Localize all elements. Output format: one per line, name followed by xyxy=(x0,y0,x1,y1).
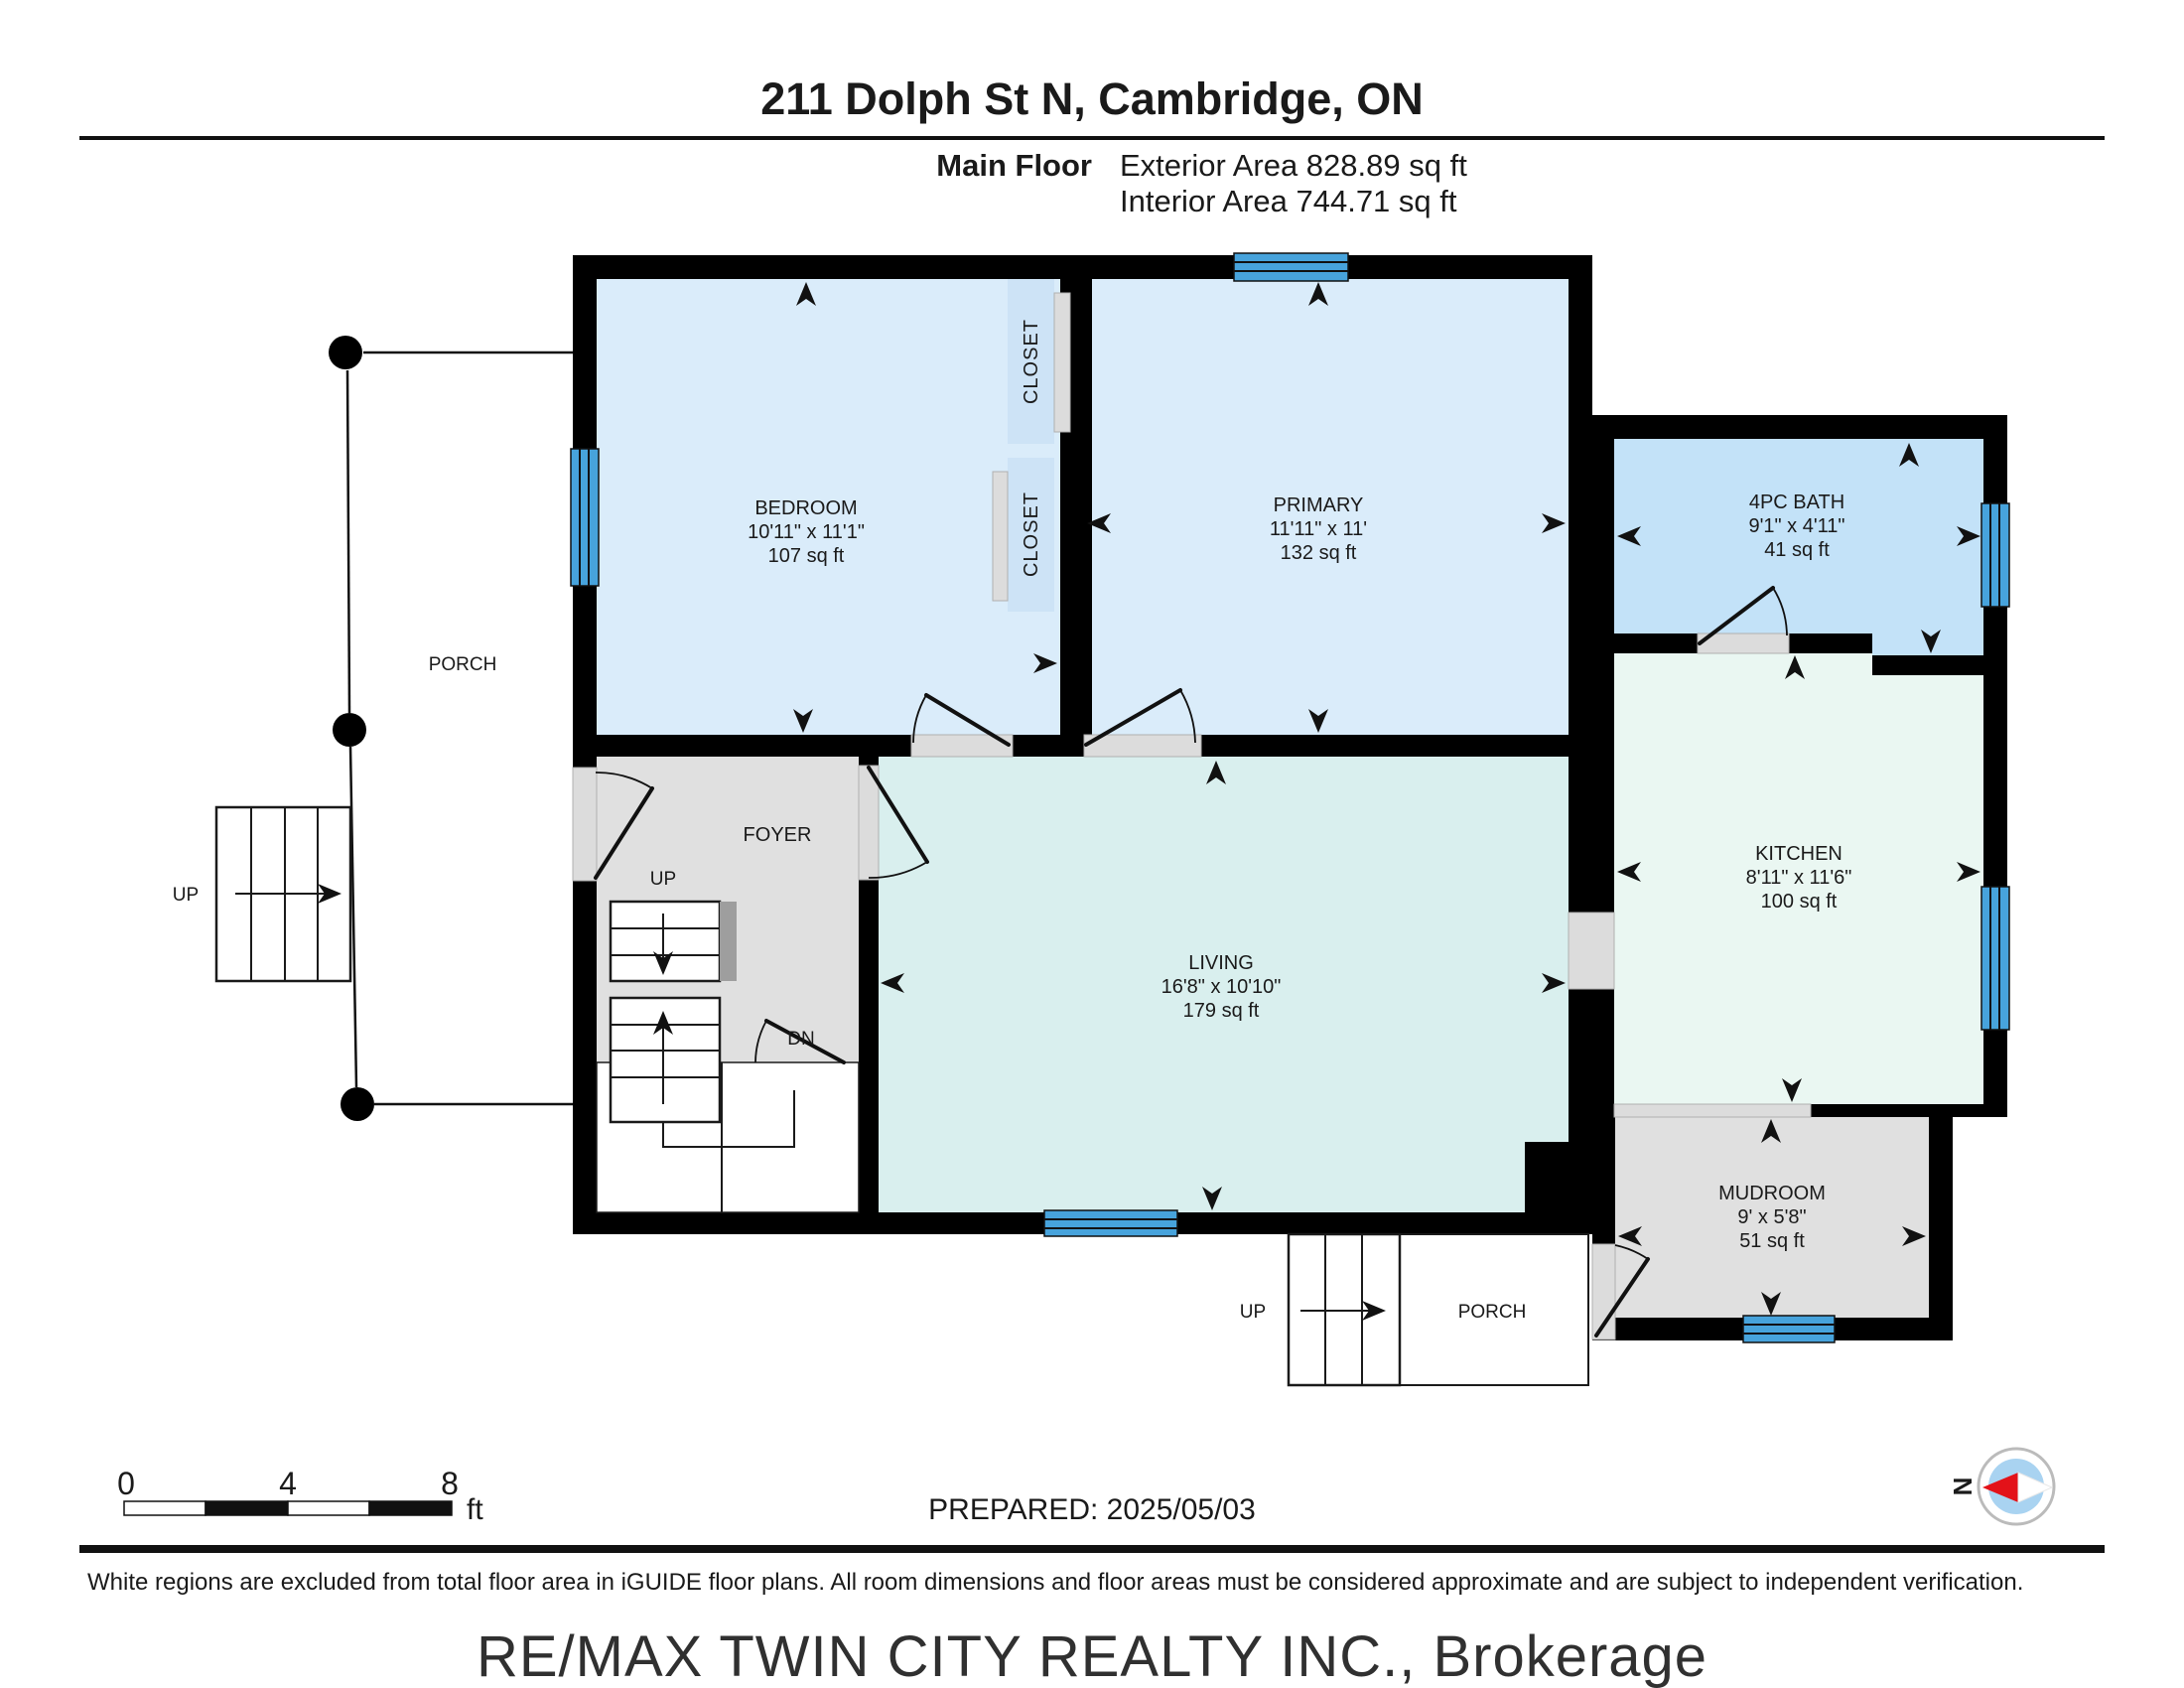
kitchen-name: KITCHEN xyxy=(1755,843,1843,865)
foyer-dn-label: DN xyxy=(787,1029,814,1050)
primary-area: 132 sq ft xyxy=(1281,542,1357,564)
kitchen-mudroom-opening xyxy=(1614,1104,1811,1117)
bedroom-name: BEDROOM xyxy=(754,497,857,519)
scale-unit: ft xyxy=(467,1493,483,1526)
porch-up-label: UP xyxy=(1240,1302,1266,1323)
primary-window xyxy=(1234,253,1348,281)
porch-post xyxy=(329,336,362,369)
bath-area: 41 sq ft xyxy=(1764,539,1830,561)
floor-plan-canvas: 211 Dolph St N, Cambridge, ON Main Floor… xyxy=(0,0,2184,1688)
entry-door-opening xyxy=(573,768,597,881)
closet-bottom-label: CLOSET xyxy=(1021,492,1042,577)
left-porch: UP PORCH xyxy=(173,336,573,1121)
living-name: LIVING xyxy=(1188,952,1254,974)
disclaimer-text: White regions are excluded from total fl… xyxy=(87,1569,2023,1596)
bottom-porch: UP PORCH xyxy=(1240,1234,1588,1385)
scale-bar: 0 4 8 ft xyxy=(117,1466,483,1526)
living-window xyxy=(1044,1210,1177,1236)
bath-window xyxy=(1981,503,2009,607)
scale-tick-4: 4 xyxy=(279,1466,297,1501)
closet-top-door xyxy=(1054,293,1070,432)
foyer-name: FOYER xyxy=(744,824,812,846)
living-dims: 16'8" x 10'10" xyxy=(1161,976,1282,998)
mudroom-window xyxy=(1743,1316,1835,1342)
exterior-area: Exterior Area 828.89 sq ft xyxy=(1120,148,1467,183)
bedroom-area: 107 sq ft xyxy=(768,545,845,567)
kitchen-window xyxy=(1981,887,2009,1030)
mudroom-name: MUDROOM xyxy=(1718,1183,1826,1204)
floor-label: Main Floor xyxy=(936,148,1092,183)
scale-tick-8: 8 xyxy=(441,1466,459,1501)
closet-bottom-door xyxy=(993,472,1008,601)
bedroom-dims: 10'11" x 11'1" xyxy=(748,521,865,543)
prepared-date: PREPARED: 2025/05/03 xyxy=(928,1493,1256,1526)
floor-plan-page: 211 Dolph St N, Cambridge, ON Main Floor… xyxy=(0,0,2184,1688)
foyer-living-door-opening xyxy=(859,766,879,880)
brokerage-watermark: RE/MAX TWIN CITY REALTY INC., Brokerage xyxy=(477,1624,1707,1688)
stair-up-label: UP xyxy=(173,885,199,906)
closet-top-label: CLOSET xyxy=(1021,319,1042,404)
living-kitchen-opening xyxy=(1569,913,1614,989)
porch-left-label: PORCH xyxy=(429,654,497,675)
bedroom-window xyxy=(571,449,599,586)
porch-post xyxy=(333,713,366,747)
living-area: 179 sq ft xyxy=(1183,1000,1260,1022)
interior-area: Interior Area 744.71 sq ft xyxy=(1120,184,1457,218)
mudroom-dims: 9' x 5'8" xyxy=(1737,1206,1806,1228)
footer-divider xyxy=(79,1545,2105,1553)
porch-post xyxy=(341,1087,374,1121)
primary-dims: 11'11" x 11' xyxy=(1270,518,1367,540)
foyer-up-label: UP xyxy=(650,869,676,890)
kitchen-dims: 8'11" x 11'6" xyxy=(1746,867,1852,889)
wall-block xyxy=(1525,1142,1592,1212)
porch-bottom-label: PORCH xyxy=(1458,1302,1527,1323)
bath-dims: 9'1" x 4'11" xyxy=(1748,515,1844,537)
scale-tick-0: 0 xyxy=(117,1466,135,1501)
compass: N xyxy=(1948,1449,2054,1524)
stair-handrail xyxy=(720,902,737,981)
primary-name: PRIMARY xyxy=(1274,494,1364,516)
primary-door-opening xyxy=(1084,735,1201,757)
compass-north-label: N xyxy=(1948,1477,1978,1496)
kitchen-area: 100 sq ft xyxy=(1761,891,1838,913)
header-divider xyxy=(79,136,2105,140)
bath-name: 4PC BATH xyxy=(1749,492,1844,513)
mudroom-area: 51 sq ft xyxy=(1739,1230,1805,1252)
page-title: 211 Dolph St N, Cambridge, ON xyxy=(760,73,1424,124)
